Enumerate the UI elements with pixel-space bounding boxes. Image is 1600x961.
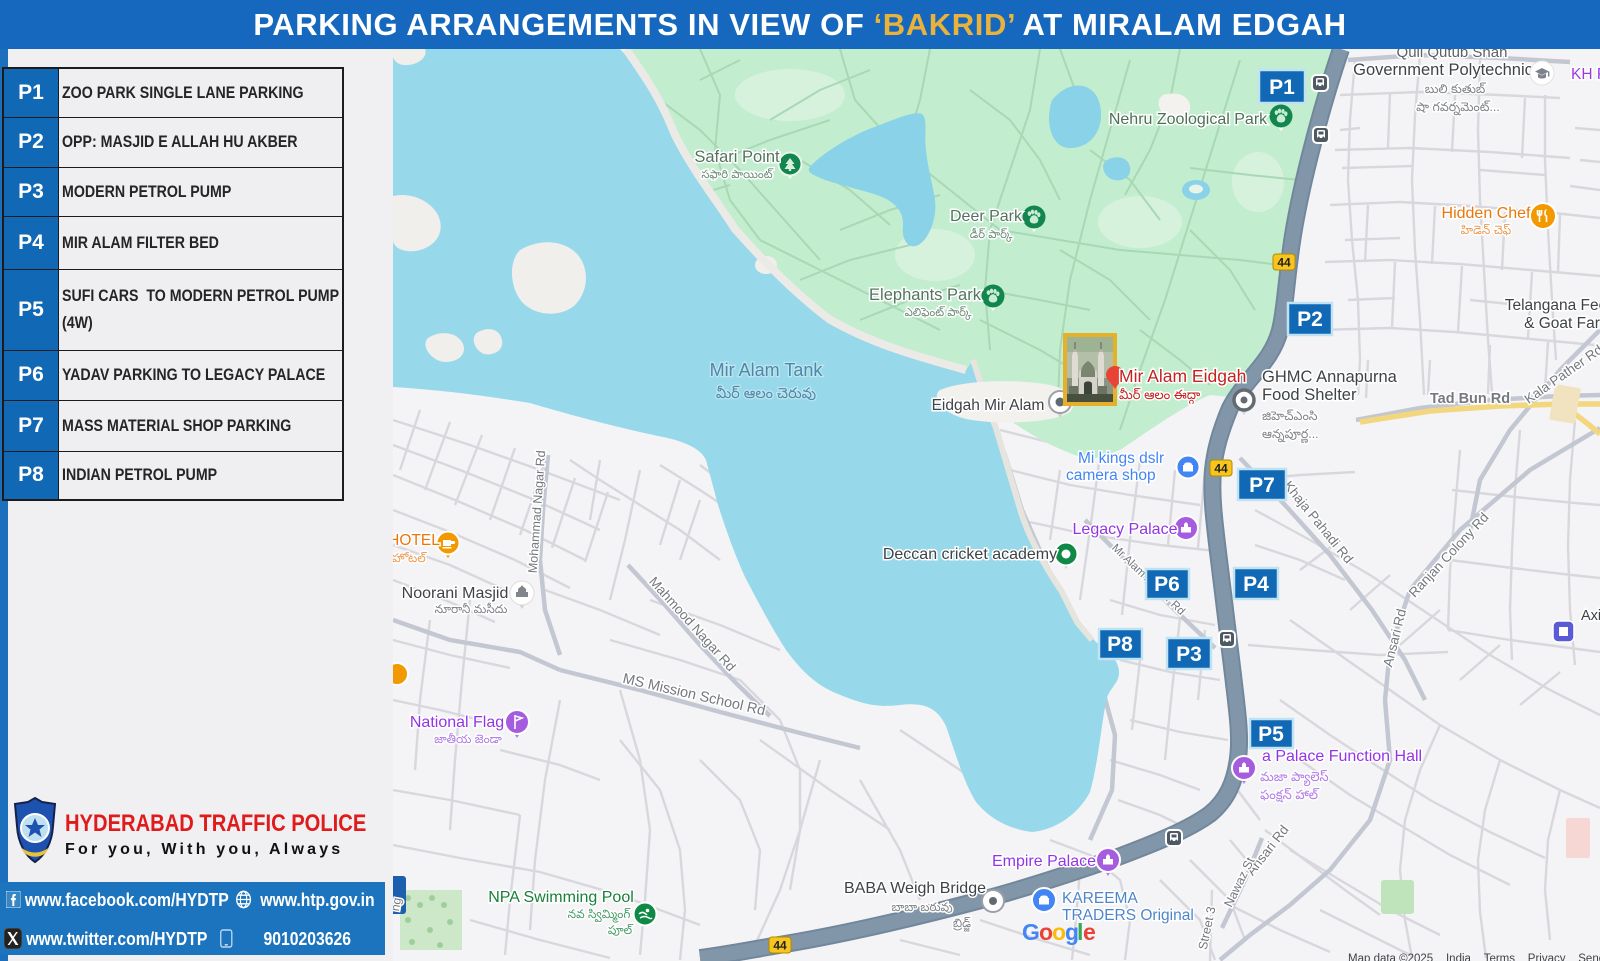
svg-text:డీర్ పార్క్: డీర్ పార్క్: [970, 228, 1013, 242]
svg-text:బ్రిడ్జ్: బ్రిడ్జ్: [953, 916, 971, 932]
svg-text:Axi: Axi: [1581, 608, 1600, 624]
svg-text:నవ స్విమ్మింగ్: నవ స్విమ్మింగ్: [568, 907, 632, 923]
svg-text:& Goat Far: & Goat Far: [1524, 315, 1600, 332]
svg-text:G: G: [1022, 919, 1039, 945]
svg-text:P8: P8: [1107, 633, 1133, 656]
svg-text:camera shop: camera shop: [1066, 467, 1156, 484]
svg-text:Eidgah Mir Alam: Eidgah Mir Alam: [932, 397, 1045, 414]
svg-text:P6: P6: [1154, 573, 1180, 596]
svg-text:మీర్ ఆలం చెరువు: మీర్ ఆలం చెరువు: [716, 385, 816, 402]
svg-text:GHMC Annapurna: GHMC Annapurna: [1262, 368, 1398, 386]
svg-text:P7: P7: [1249, 474, 1275, 497]
svg-text:P1: P1: [1269, 76, 1295, 99]
svg-text:ఫంక్షన్ హాల్: ఫంక్షన్ హాల్: [1260, 787, 1320, 803]
svg-text:Telangana Fee: Telangana Fee: [1505, 297, 1600, 314]
svg-text:జాతీయ జెండా: జాతీయ జెండా: [434, 732, 503, 746]
svg-text:Mir Alam Tank: Mir Alam Tank: [710, 360, 824, 380]
svg-text:పూల్: పూల్: [608, 923, 634, 937]
svg-text:Nehru Zoological Park: Nehru Zoological Park: [1109, 111, 1268, 128]
svg-text:HOTEL: HOTEL: [393, 532, 440, 549]
svg-text:BABA Weigh Bridge: BABA Weigh Bridge: [844, 880, 986, 897]
svg-text:సఫారి పాయింట్: సఫారి పాయింట్: [701, 168, 773, 181]
svg-text:Mir Alam Eidgah: Mir Alam Eidgah: [1119, 366, 1246, 386]
svg-text:Map data ©2025 India Ter: Map data ©2025 India Terms Privacy Send: [1348, 953, 1600, 961]
svg-text:P2: P2: [1297, 308, 1323, 331]
svg-text:l: l: [1077, 919, 1082, 945]
svg-text:P4: P4: [1243, 573, 1269, 596]
svg-text:Food Shelter: Food Shelter: [1262, 386, 1357, 404]
svg-text:నూరానీ మసీదు: నూరానీ మసీదు: [435, 602, 508, 616]
svg-text:Deccan cricket academy: Deccan cricket academy: [883, 546, 1057, 563]
svg-text:Government Polytechnic: Government Polytechnic: [1353, 61, 1533, 79]
svg-text:Quli Qutub Shah: Quli Qutub Shah: [1397, 49, 1508, 61]
svg-text:P5: P5: [1258, 723, 1284, 746]
svg-text:ఎలిఫెంట్ పార్క్: ఎలిఫెంట్ పార్క్: [905, 306, 972, 320]
svg-text:హిడెన్ చెఫ్: హిడెన్ చెఫ్: [1461, 223, 1512, 237]
svg-text:Elephants Park: Elephants Park: [869, 286, 982, 304]
svg-text:ఆన్నపూర్ణ...: ఆన్నపూర్ణ...: [1262, 427, 1319, 443]
svg-text:e: e: [1083, 919, 1095, 945]
svg-text:Deer Park: Deer Park: [950, 208, 1023, 225]
svg-text:బాబా బరువు: బాబా బరువు: [891, 900, 952, 914]
svg-text:a Palace Function Hall: a Palace Function Hall: [1262, 748, 1422, 765]
svg-text:Tad Bun Rd: Tad Bun Rd: [1430, 391, 1510, 407]
svg-text:Mi kings dslr: Mi kings dslr: [1078, 450, 1164, 467]
svg-text:Empire Palace: Empire Palace: [992, 853, 1096, 870]
svg-text:Noorani Masjid: Noorani Masjid: [402, 585, 509, 602]
svg-text:జిహెచ్ఎంసి: జిహెచ్ఎంసి: [1262, 409, 1318, 423]
svg-text:NPA Swimming Pool: NPA Swimming Pool: [488, 889, 634, 906]
svg-text:షా గవర్నమెంట్...: షా గవర్నమెంట్...: [1416, 100, 1500, 116]
svg-text:Legacy Palace: Legacy Palace: [1073, 521, 1178, 538]
svg-text:National Flag: National Flag: [410, 714, 504, 731]
svg-text:KH R: KH R: [1571, 66, 1600, 83]
svg-text:o: o: [1039, 919, 1053, 945]
svg-text:KAREEMA: KAREEMA: [1062, 890, 1138, 907]
svg-text:Safari Point: Safari Point: [694, 148, 780, 166]
svg-text:Hidden Chef: Hidden Chef: [1442, 205, 1532, 222]
svg-text:బులి కుతుబ్: బులి కుతుబ్: [1425, 82, 1487, 96]
svg-text:o: o: [1052, 919, 1066, 945]
svg-text:P3: P3: [1176, 643, 1202, 666]
svg-text:హోటల్: హోటల్: [393, 551, 427, 565]
